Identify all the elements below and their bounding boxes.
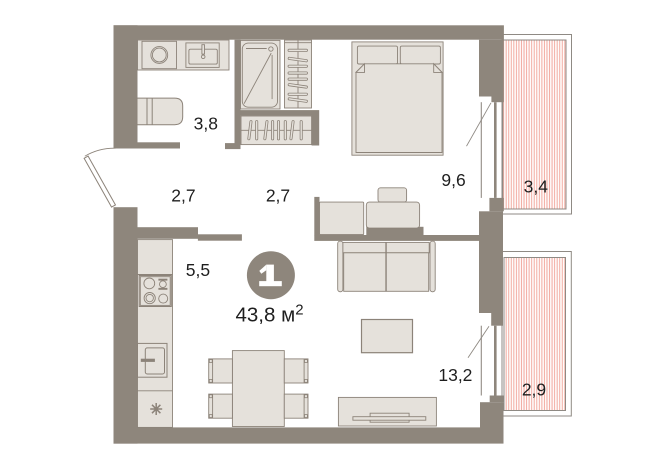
svg-text:5,5: 5,5 [186,260,210,280]
svg-text:3,8: 3,8 [194,114,218,134]
svg-text:9,6: 9,6 [441,170,465,190]
svg-text:43,8 м2: 43,8 м2 [236,302,304,327]
svg-text:2,7: 2,7 [266,186,290,206]
svg-text:13,2: 13,2 [438,365,472,385]
svg-text:2,9: 2,9 [522,379,546,399]
svg-text:3,4: 3,4 [524,176,549,196]
svg-text:2,7: 2,7 [171,186,195,206]
